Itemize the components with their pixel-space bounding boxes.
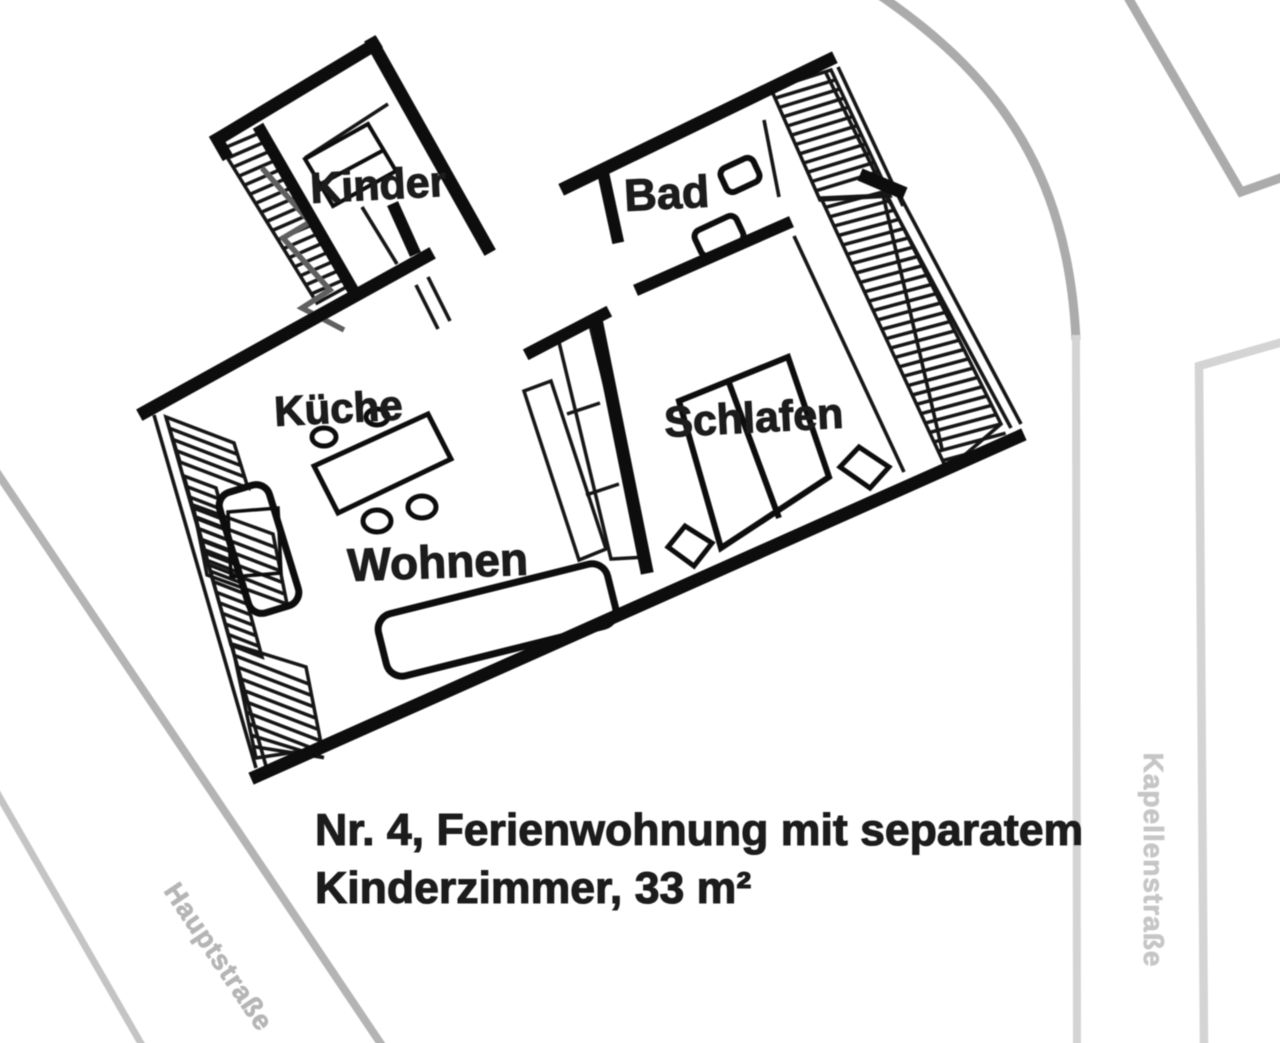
svg-text:Schlafen: Schlafen [663,390,845,447]
svg-text:Kapellenstraße: Kapellenstraße [1138,753,1169,968]
svg-text:Wohnen: Wohnen [347,533,529,591]
svg-text:Kinderzimmer, 33 m²: Kinderzimmer, 33 m² [315,864,751,913]
svg-text:Nr. 4, Ferienwohnung mit separ: Nr. 4, Ferienwohnung mit separatem [315,806,1083,855]
svg-text:Bad: Bad [623,166,711,221]
svg-text:Kinder: Kinder [309,158,448,213]
svg-text:Küche: Küche [273,381,404,435]
